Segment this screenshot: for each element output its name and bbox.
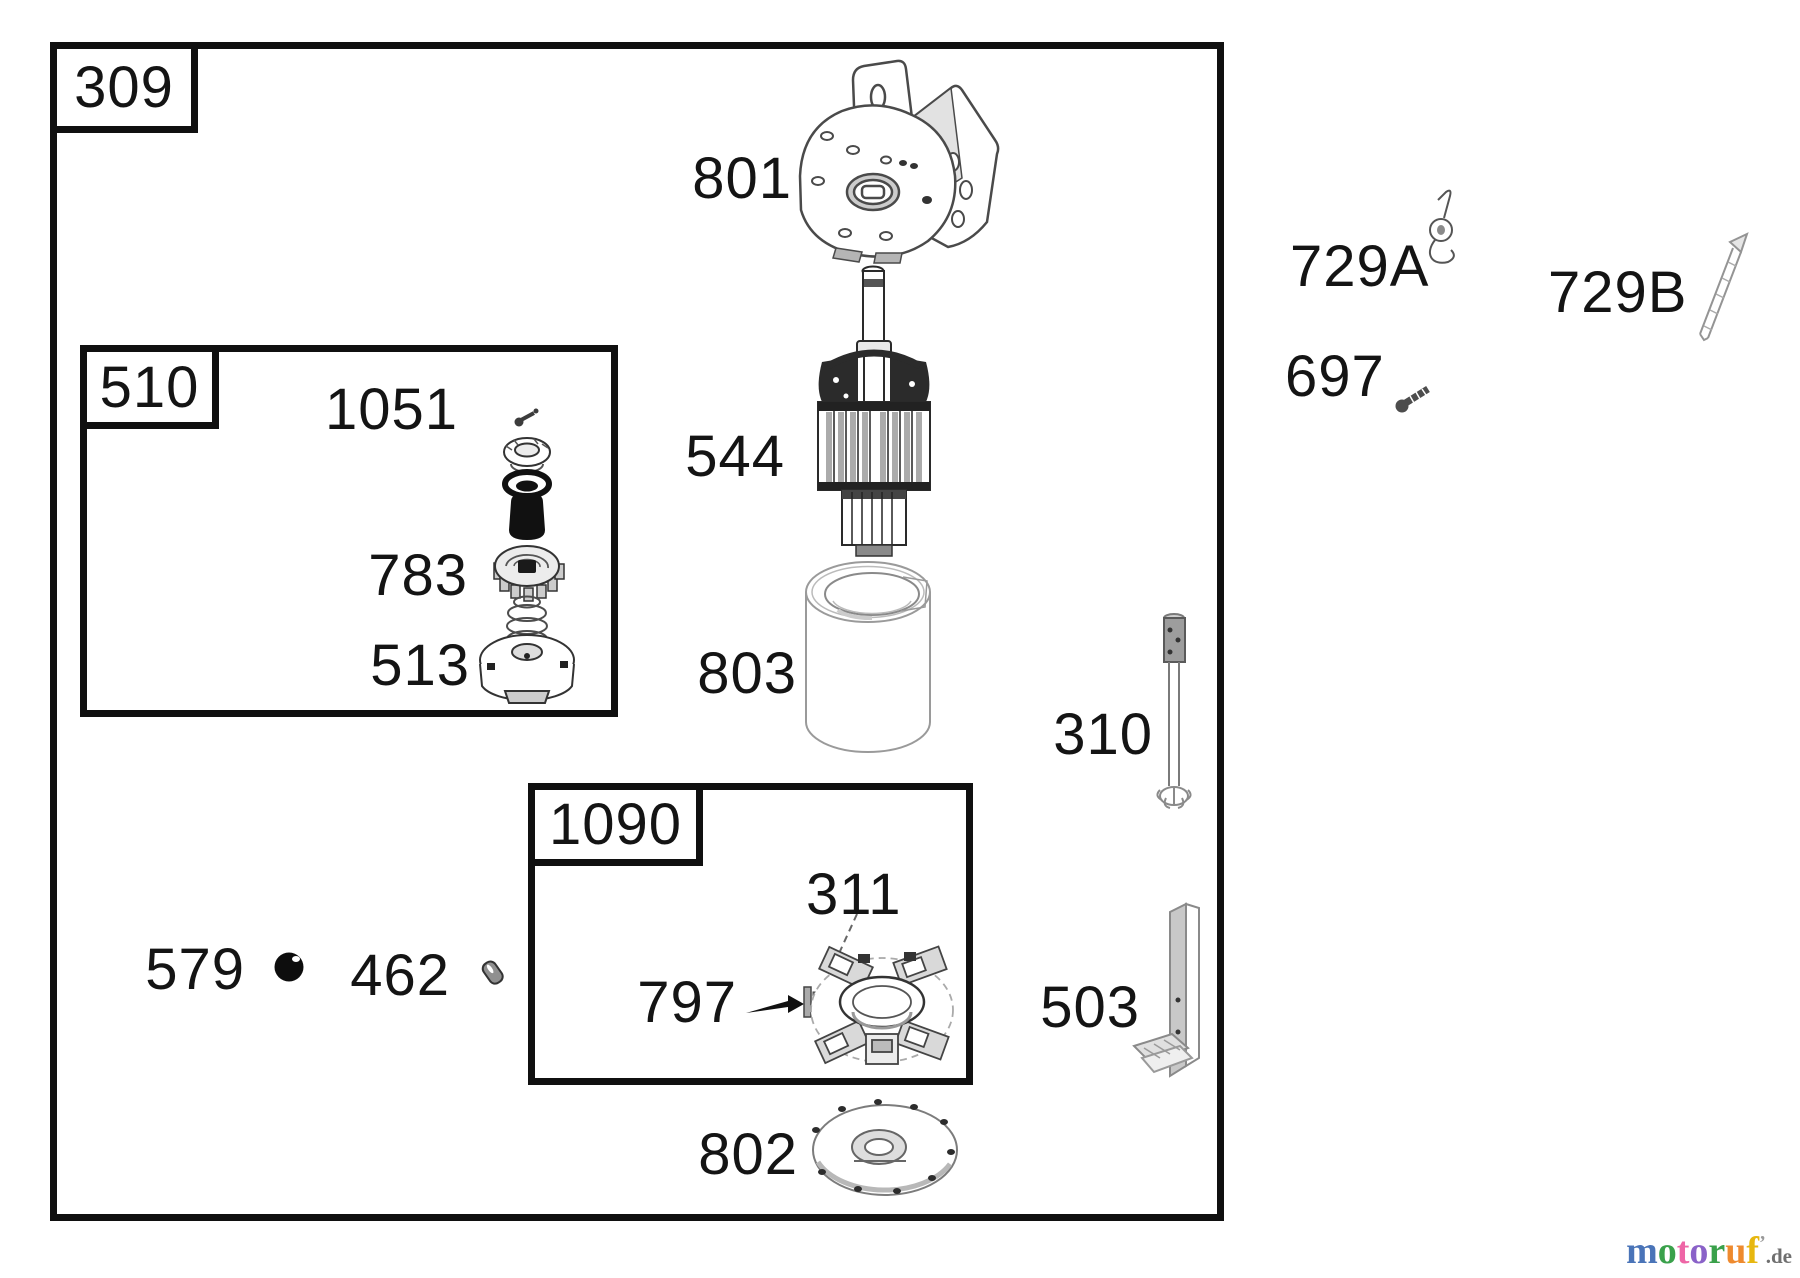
diagram-stage: 309 510 1090	[0, 0, 1800, 1278]
callout-clip-729b: 729B	[1548, 264, 1687, 322]
watermark-letter: m	[1626, 1230, 1658, 1272]
callout-brush-terminal-311: 311	[806, 866, 901, 924]
bracket-drawing	[1134, 904, 1199, 1076]
callout-screw-697: 697	[1285, 348, 1385, 406]
callout-roll-pin-462: 462	[230, 947, 450, 1005]
end-cap-bracket-drawing	[800, 61, 998, 263]
callout-end-cap-bracket-801: 801	[572, 150, 792, 208]
callout-bracket-503: 503	[920, 979, 1140, 1037]
callout-ball-579: 579	[25, 941, 245, 999]
callout-pinion-gear-783: 783	[248, 547, 468, 605]
callout-clip-729a: 729A	[1290, 238, 1429, 296]
through-bolt-drawing	[1157, 614, 1190, 808]
watermark-letter: r	[1708, 1230, 1725, 1272]
roll-pin-drawing	[480, 959, 505, 986]
watermark-letter: o	[1689, 1230, 1708, 1272]
motoruf-watermark-link[interactable]: motoruf’.de	[1626, 1232, 1792, 1270]
gear-kit-stack-drawing	[504, 409, 550, 541]
watermark-letter: f	[1746, 1230, 1759, 1272]
callout-housing-803: 803	[577, 645, 797, 703]
pinion-gear-drawing	[494, 546, 564, 601]
clutch-retainer-drawing	[480, 597, 574, 704]
callout-brush-assembly-797: 797	[517, 974, 737, 1032]
callout-armature-544: 544	[565, 428, 785, 486]
watermark-letter: t	[1677, 1230, 1690, 1272]
callout-gear-kit-1051: 1051	[238, 381, 458, 439]
clip-a-drawing	[1430, 191, 1454, 263]
screw-drawing	[1396, 389, 1429, 413]
watermark-tick: ’	[1759, 1232, 1766, 1254]
callout-clutch-retainer-513: 513	[250, 637, 470, 695]
end-cap-plate-drawing	[812, 1099, 957, 1195]
callout-through-bolt-310: 310	[933, 706, 1153, 764]
watermark-suffix: .de	[1766, 1244, 1792, 1268]
housing-cylinder-drawing	[806, 562, 930, 752]
callout-end-cap-plate-802: 802	[578, 1126, 798, 1184]
watermark-letter: o	[1658, 1230, 1677, 1272]
armature-drawing	[818, 267, 930, 572]
watermark-letter: u	[1725, 1230, 1746, 1272]
clip-b-drawing	[1700, 234, 1747, 340]
